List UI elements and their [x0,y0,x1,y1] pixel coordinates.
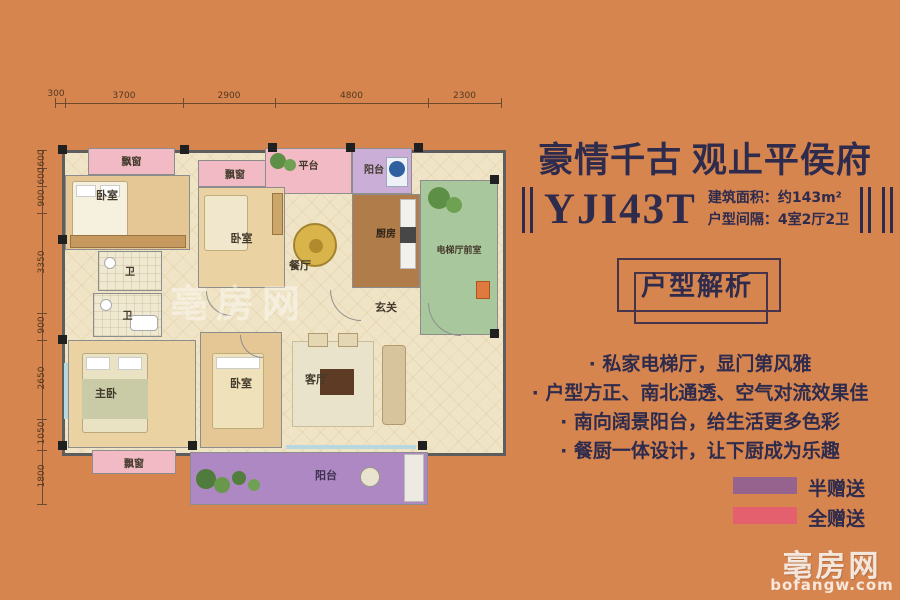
dim-left: 3350 [37,242,47,282]
pillow-graphic [216,357,260,369]
dim-top: 3700 [65,91,183,101]
double-bar-ornament [860,187,871,233]
wardrobe-graphic [70,235,186,248]
model-row: YJI43T 建筑面积：约143m² 户型间隔：4室2厅2卫 [520,185,895,234]
dim-left: 2650 [37,358,47,398]
balcony-top-label: 阳台 [352,161,396,176]
plant-graphic [248,479,260,491]
bedroom-label: 卧室 [198,230,285,246]
living-label: 客厅 [286,371,346,387]
ruler-tick [501,98,502,108]
ruler-tick [37,504,47,505]
bath-label: 卫 [98,263,162,278]
floor-plan: 300 3700 2900 4800 2300 600 600 900 3350… [30,85,535,530]
legend-label-half-gift: 半赠送 [808,474,865,501]
bay-window-label: 飘窗 [88,153,175,168]
dim-left: 1800 [37,456,47,496]
master-bedroom-label: 主卧 [74,385,138,401]
model-info: 建筑面积：约143m² 户型间隔：4室2厅2卫 [708,188,849,231]
wall-block [490,329,499,338]
bay-window-label: 飘窗 [198,166,272,181]
feature-item: · 餐厨一体设计，让下厨成为乐趣 [505,437,895,466]
kitchen-label: 厨房 [352,225,420,240]
dim-left: 900 [37,178,47,218]
site-watermark-domain: bofangw.com [768,576,896,594]
pillow-graphic [86,357,110,370]
foyer-label: 玄关 [352,299,420,315]
wall-block [188,441,197,450]
armchair-graphic [308,333,328,347]
elevator-button-graphic [476,281,490,299]
feature-item: · 私家电梯厅，显门第风雅 [505,350,895,379]
bath-label: 卫 [93,307,162,322]
dim-top: 2900 [183,91,275,101]
plan-watermark: 亳房网 [170,273,308,328]
feature-item: · 南向阔景阳台，给生活更多色彩 [505,408,895,437]
bedroom-label: 卧室 [72,187,142,203]
dim-top: 4800 [275,91,428,101]
wall-block [268,143,277,152]
laundry-area-graphic [404,454,424,502]
model-name: YJI43T [544,185,697,234]
wall-block [58,235,67,244]
plant-graphic [232,471,246,485]
balcony-chair-graphic [360,467,380,487]
bay-window-label: 飘窗 [92,455,176,470]
dining-label: 餐厅 [270,257,330,273]
window-graphic [286,445,416,449]
ruler-tick [55,98,56,108]
model-area: 建筑面积：约143m² [708,188,849,210]
desk-graphic [272,193,283,235]
plant-graphic [214,477,230,493]
poster: 300 3700 2900 4800 2300 600 600 900 3350… [0,0,900,600]
wall-block [346,143,355,152]
dim-left: 1050 [37,413,47,453]
wall-block [180,145,189,154]
wall-block [490,175,499,184]
dim-top: 2300 [428,91,501,101]
legend-swatch-full-gift [733,507,797,524]
elevator-lobby-label: 电梯厅前室 [420,243,498,256]
window-graphic [64,363,68,419]
plant-graphic [446,197,462,213]
wall-block [58,441,67,450]
wall-block [418,441,427,450]
wall-block [58,335,67,344]
platform-label: 平台 [265,157,352,172]
plant-graphic [196,469,216,489]
dim-left: 900 [37,305,47,345]
top-ruler-line [55,103,501,104]
legend-swatch-half-gift [733,477,797,494]
analysis-button[interactable]: 户型解析 [617,266,777,303]
armchair-graphic [338,333,358,347]
feature-list: · 私家电梯厅，显门第风雅 · 户型方正、南北通透、空气对流效果佳 · 南向阔景… [505,350,895,466]
poster-title: 豪情千古 观止平侯府 [515,132,895,183]
legend-label-full-gift: 全赠送 [808,504,865,531]
feature-item: · 户型方正、南北通透、空气对流效果佳 [505,379,895,408]
bedroom-label: 卧室 [206,375,276,391]
balcony-main-label: 阳台 [296,467,356,483]
double-bar-ornament [882,187,893,233]
wall-block [414,143,423,152]
double-bar-ornament [522,187,533,233]
pillow-graphic [118,357,142,370]
wall-block [58,145,67,154]
dining-table-graphic [309,239,323,253]
sofa-graphic [382,345,406,425]
model-layout: 户型间隔：4室2厅2卫 [708,210,849,232]
